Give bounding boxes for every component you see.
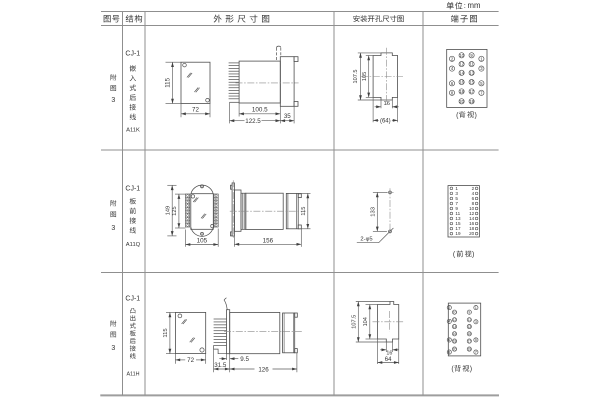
svg-text:2: 2 [448, 306, 450, 310]
svg-text:13: 13 [467, 325, 471, 329]
svg-text:115: 115 [163, 328, 169, 337]
svg-text:(64): (64) [380, 119, 391, 125]
svg-text:19: 19 [455, 231, 461, 236]
svg-text:12: 12 [459, 62, 464, 67]
svg-text:16: 16 [386, 351, 392, 357]
svg-text:5: 5 [475, 338, 477, 342]
svg-text:4: 4 [448, 320, 450, 324]
svg-text:35: 35 [284, 113, 291, 120]
svg-text:): ) [475, 112, 477, 119]
svg-text:11: 11 [467, 318, 471, 322]
svg-text:15: 15 [467, 332, 471, 336]
svg-text:3: 3 [111, 225, 115, 232]
svg-text:9: 9 [468, 311, 470, 315]
svg-text:CJ-1: CJ-1 [125, 50, 140, 57]
svg-text:16: 16 [459, 80, 464, 85]
svg-text:CJ-1: CJ-1 [125, 185, 140, 192]
svg-text:72: 72 [192, 107, 199, 114]
svg-text:12: 12 [453, 318, 457, 322]
svg-text:149: 149 [165, 206, 171, 215]
svg-text:107.5: 107.5 [353, 69, 359, 83]
svg-text:): ) [472, 252, 474, 259]
svg-text:31.5: 31.5 [214, 362, 227, 369]
svg-text:A11H: A11H [126, 371, 139, 377]
svg-text:7: 7 [475, 350, 477, 354]
svg-text:14: 14 [453, 325, 457, 329]
svg-text:6: 6 [448, 338, 450, 342]
svg-text:122.5: 122.5 [245, 118, 261, 125]
svg-text:A11K: A11K [126, 128, 140, 134]
svg-text:104: 104 [363, 317, 369, 326]
svg-text:A11Q: A11Q [126, 242, 141, 248]
svg-text:3: 3 [111, 97, 115, 104]
svg-text:9.5: 9.5 [240, 356, 249, 363]
svg-text:18: 18 [459, 89, 464, 94]
svg-text:3: 3 [475, 320, 477, 324]
svg-text:20: 20 [453, 347, 457, 351]
svg-text:10: 10 [453, 311, 457, 315]
svg-text:): ) [470, 366, 472, 373]
svg-text:107.5: 107.5 [351, 315, 357, 329]
svg-text:mm: mm [468, 1, 481, 10]
svg-text:10: 10 [459, 53, 464, 58]
svg-text:19: 19 [467, 347, 471, 351]
svg-text:13: 13 [469, 70, 474, 75]
svg-text:156: 156 [263, 237, 274, 244]
svg-text:64: 64 [385, 357, 392, 363]
svg-text:20: 20 [459, 99, 464, 104]
svg-text:16: 16 [383, 101, 389, 107]
svg-text:125: 125 [172, 206, 178, 215]
svg-text::: : [464, 1, 466, 10]
svg-text:100.5: 100.5 [252, 106, 268, 113]
svg-text:105: 105 [197, 238, 208, 245]
svg-text:133: 133 [370, 207, 376, 217]
svg-text:1: 1 [475, 306, 477, 310]
svg-text:115: 115 [165, 77, 172, 87]
svg-text:126: 126 [258, 366, 269, 373]
svg-text:8: 8 [448, 350, 450, 354]
svg-text:3: 3 [111, 345, 115, 352]
svg-text:2-φ5: 2-φ5 [360, 237, 372, 243]
svg-text:11: 11 [469, 62, 474, 67]
svg-text:115: 115 [301, 207, 307, 216]
svg-text:17: 17 [467, 339, 471, 343]
svg-text:17: 17 [469, 89, 474, 94]
svg-text:72: 72 [187, 357, 194, 364]
svg-text:16: 16 [453, 332, 457, 336]
svg-text:19: 19 [469, 99, 474, 104]
svg-text:20: 20 [469, 231, 475, 236]
svg-text:14: 14 [459, 70, 464, 75]
svg-text:CJ-1: CJ-1 [125, 295, 140, 302]
svg-text:18: 18 [453, 339, 457, 343]
svg-text:105: 105 [362, 72, 368, 81]
svg-text:15: 15 [469, 80, 474, 85]
